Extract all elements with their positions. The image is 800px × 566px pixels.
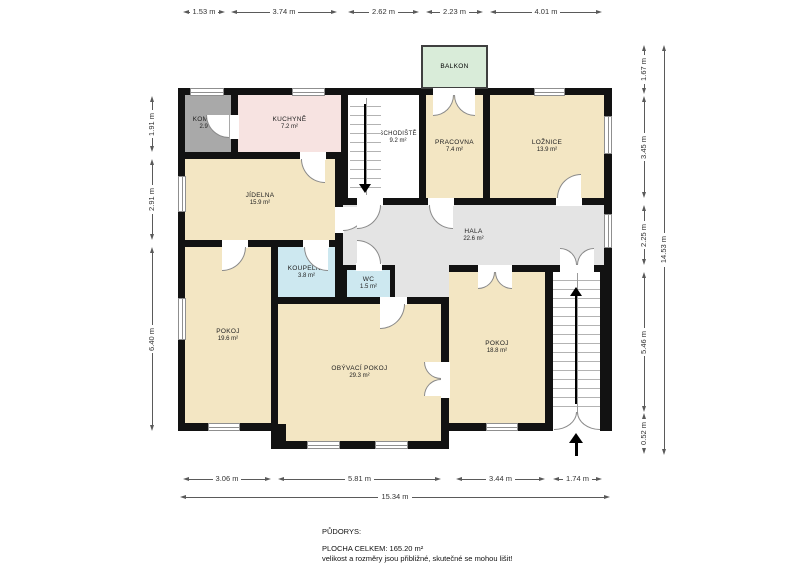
room-area: 29.3 m² xyxy=(349,373,369,380)
dim-label: 1.67 m xyxy=(640,55,648,84)
window-pokoj-levy-bottom xyxy=(208,423,240,431)
dim-right-total: 14.53 m xyxy=(658,45,670,455)
room-label: WC xyxy=(363,275,374,284)
room-label: POKOJ xyxy=(216,327,240,336)
window-kuchyne xyxy=(292,88,325,96)
window-loznice-right xyxy=(604,116,612,154)
door-gap-komora xyxy=(230,115,239,139)
room-label: OBÝVACÍ POKOJ xyxy=(331,364,387,373)
room-area: 15.9 m² xyxy=(250,200,270,207)
window-loznice-top xyxy=(534,88,565,96)
dim-top-2: 3.74 m xyxy=(231,7,337,17)
room-label: KUCHYNĚ xyxy=(273,115,307,124)
room-wc: WC 1.5 m² xyxy=(347,270,390,297)
dim-bottom-1: 3.06 m xyxy=(183,474,271,484)
footer-notes: PŮDORYS: PLOCHA CELKEM: 165.20 m² veliko… xyxy=(322,527,513,563)
dim-right-2: 3.45 m xyxy=(638,96,650,198)
window-komora xyxy=(190,88,224,96)
window-pokoj-pravy-bottom xyxy=(486,423,518,431)
bump-left-wall xyxy=(271,424,286,449)
room-area: 7.4 m² xyxy=(446,147,463,154)
room-area: 18.8 m² xyxy=(487,348,507,355)
dim-label: 3.74 m xyxy=(270,8,299,16)
room-area: 3.8 m² xyxy=(298,273,315,280)
room-label: HALA xyxy=(464,227,482,236)
dim-label: 15.34 m xyxy=(378,493,411,501)
dim-label: 14.53 m xyxy=(660,233,668,266)
room-label: BALKON xyxy=(440,62,468,71)
dim-bottom-2: 5.81 m xyxy=(278,474,441,484)
door-gap-wc xyxy=(356,263,382,271)
room-area: 19.6 m² xyxy=(218,336,238,343)
room-area: 7.2 m² xyxy=(281,124,298,131)
dim-label: 2.25 m xyxy=(640,221,648,250)
dim-label: 2.62 m xyxy=(369,8,398,16)
door-gap-obyvaci-pokoj xyxy=(441,362,450,398)
room-schodiste-label: SCHODIŠTĚ 9.2 m² xyxy=(376,130,420,146)
window-obyvaci-1 xyxy=(307,441,340,449)
dim-left-1: 1.91 m xyxy=(146,96,158,152)
entrance-arrow-icon xyxy=(569,433,583,456)
room-label: LOŽNICE xyxy=(532,138,562,147)
dim-label: 0.52 m xyxy=(640,419,648,448)
dim-label: 3.44 m xyxy=(486,475,515,483)
dim-right-5: 0.52 m xyxy=(638,413,650,453)
dim-label: 5.46 m xyxy=(640,328,648,357)
total-area-text: PLOCHA CELKEM: 165.20 m² xyxy=(322,544,513,554)
room-balkon: BALKON xyxy=(421,45,488,89)
room-kuchyne: KUCHYNĚ 7.2 m² xyxy=(238,95,341,152)
plan-title: PŮDORYS: xyxy=(322,527,513,537)
dim-top-5: 4.01 m xyxy=(490,7,602,17)
dim-label: 1.91 m xyxy=(148,110,156,139)
dim-label: 6.40 m xyxy=(148,325,156,354)
hala-corridor xyxy=(395,265,449,297)
room-label: PRACOVNA xyxy=(435,138,474,147)
dim-label: 3.06 m xyxy=(213,475,242,483)
dim-bottom-4: 1.74 m xyxy=(553,474,602,484)
dim-label: 2.23 m xyxy=(440,8,469,16)
dim-left-3: 6.40 m xyxy=(146,247,158,431)
window-hala-right xyxy=(604,214,612,248)
dim-label: 3.45 m xyxy=(640,133,648,162)
window-jidelna-left xyxy=(178,176,186,212)
dim-label: 4.01 m xyxy=(532,8,561,16)
room-loznice: LOŽNICE 13.9 m² xyxy=(490,95,604,198)
dim-bottom-total: 15.34 m xyxy=(180,492,610,502)
dim-label: 1.53 m xyxy=(190,8,219,16)
door-gap-loznice xyxy=(556,198,582,206)
dim-top-4: 2.23 m xyxy=(426,7,483,17)
door-gap-hala-schody xyxy=(560,265,594,273)
room-label: POKOJ xyxy=(485,339,509,348)
stairs-up-arrow-icon xyxy=(570,287,582,404)
dim-label: 5.81 m xyxy=(345,475,374,483)
room-area: 9.2 m² xyxy=(376,138,420,145)
room-label: JÍDELNA xyxy=(246,191,275,200)
room-pokoj-levy: POKOJ 19.6 m² xyxy=(185,247,271,423)
dim-bottom-3: 3.44 m xyxy=(456,474,545,484)
dim-label: 1.74 m xyxy=(563,475,592,483)
stairs-down-arrow-icon xyxy=(359,104,371,193)
window-pokoj-levy-left xyxy=(178,298,186,340)
room-area: 13.9 m² xyxy=(537,147,557,154)
dim-top-1: 1.53 m xyxy=(183,7,225,17)
dim-label: 2.91 m xyxy=(148,185,156,214)
dim-left-2: 2.91 m xyxy=(146,159,158,240)
disclaimer-text: velikost a rozměry jsou přibližné, skute… xyxy=(322,554,513,564)
dim-right-4: 5.46 m xyxy=(638,272,650,412)
room-label: SCHODIŠTĚ xyxy=(376,130,420,138)
dim-right-1: 1.67 m xyxy=(638,45,650,94)
window-obyvaci-2 xyxy=(375,441,408,449)
dim-top-3: 2.62 m xyxy=(348,7,419,17)
room-pokoj-pravy: POKOJ 18.8 m² xyxy=(449,272,545,423)
room-area: 1.5 m² xyxy=(360,284,377,291)
room-obyvaci-pokoj: OBÝVACÍ POKOJ 29.3 m² xyxy=(278,304,441,441)
room-area: 22.6 m² xyxy=(463,236,483,243)
dim-right-3: 2.25 m xyxy=(638,205,650,265)
